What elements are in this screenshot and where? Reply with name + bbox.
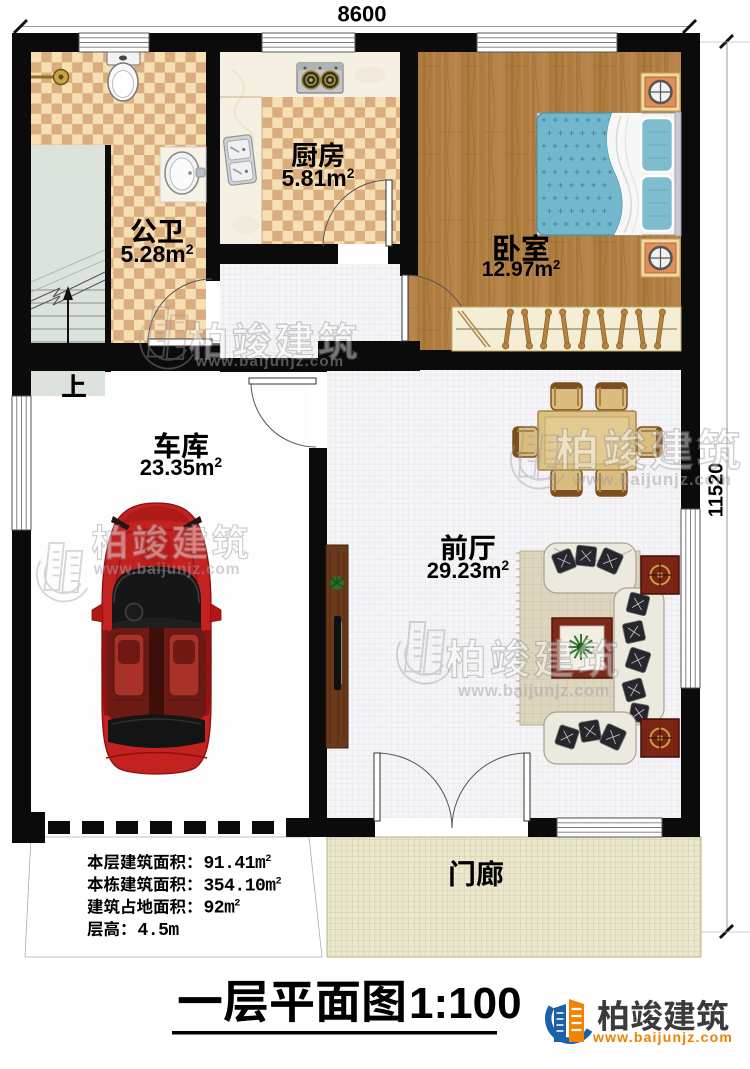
- svg-text:29.23m2: 29.23m2: [427, 557, 510, 583]
- svg-text:www.baijunjz.com: www.baijunjz.com: [93, 561, 241, 578]
- svg-text:354.10m2: 354.10m2: [204, 876, 282, 896]
- svg-text:www.baijunjz.com: www.baijunjz.com: [195, 353, 345, 370]
- svg-text:www.baijunjz.com: www.baijunjz.com: [592, 1029, 733, 1045]
- svg-text:www.baijunjz.com: www.baijunjz.com: [571, 470, 732, 489]
- svg-text:4.5m: 4.5m: [138, 921, 180, 941]
- svg-text:8600: 8600: [338, 2, 387, 27]
- svg-text:1:100: 1:100: [409, 979, 522, 1028]
- svg-text:5.28m2: 5.28m2: [120, 241, 193, 267]
- svg-text:5.81m2: 5.81m2: [281, 165, 354, 191]
- svg-text:www.baijunjz.com: www.baijunjz.com: [457, 682, 610, 700]
- svg-text:91.41m2: 91.41m2: [204, 854, 272, 874]
- svg-text:12.97m2: 12.97m2: [482, 257, 560, 281]
- svg-text:23.35m2: 23.35m2: [140, 454, 223, 480]
